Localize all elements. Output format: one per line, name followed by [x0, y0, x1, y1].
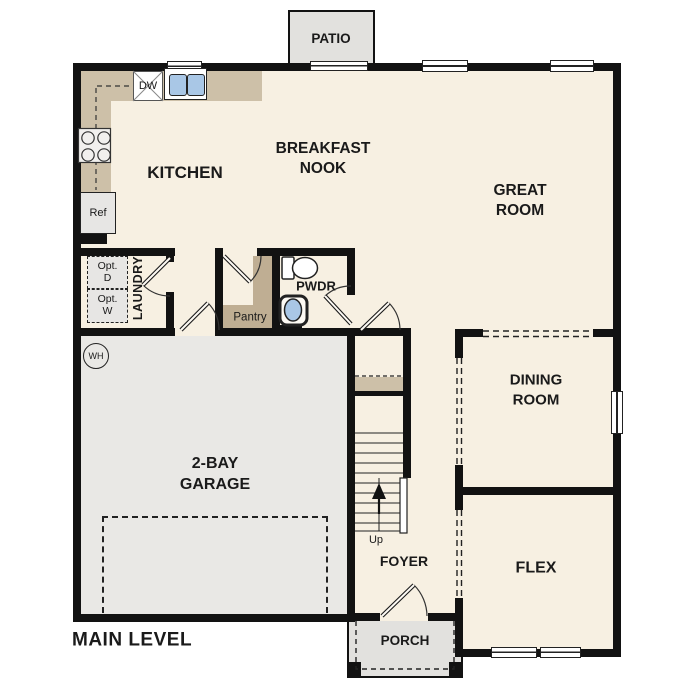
water-heater-label: WH — [89, 351, 104, 361]
kitchen-label: KITCHEN — [147, 162, 223, 184]
wall-dining-top-left — [455, 329, 483, 337]
up-label: Up — [369, 533, 383, 547]
garage-door-outline — [102, 516, 328, 613]
wall-hall-top-left — [81, 248, 175, 256]
wall-stair-right — [403, 328, 411, 478]
wall-flex-bottom — [455, 649, 621, 657]
wall-garage-top-right — [218, 328, 355, 336]
dining-window — [611, 391, 623, 434]
wall-below-ref — [73, 234, 107, 244]
wall-stair-top — [347, 328, 411, 336]
wall-left — [73, 63, 81, 622]
garage-label: 2-BAY GARAGE — [180, 454, 250, 496]
wall-garage-top-left — [73, 328, 175, 336]
laundry-label: LAUNDRY — [130, 256, 146, 320]
pantry-label: Pantry — [233, 311, 266, 326]
kitchen-counter-left — [81, 101, 111, 192]
refrigerator-label: Ref — [89, 207, 106, 219]
dw-label: DW — [139, 79, 157, 93]
patio-sliding-door — [310, 61, 368, 71]
under-stair-band — [355, 377, 403, 392]
great-room-window-2 — [550, 60, 594, 72]
opt-washer-line2: W — [103, 306, 113, 318]
opt-dryer-box: Opt. D — [87, 256, 128, 289]
wall-foyer-bottom-right — [428, 613, 455, 621]
wall-dining-bottom — [455, 487, 621, 495]
foyer-label: FOYER — [380, 552, 428, 570]
flex-label: FLEX — [516, 559, 557, 580]
wall-flex-left — [455, 598, 463, 657]
breakfast-nook-label: BREAKFAST NOOK — [276, 139, 371, 179]
wall-garage-bottom — [73, 614, 355, 622]
floor-plan: Ref Opt. D Opt. W WH — [0, 0, 687, 687]
wall-laundry-right-stub — [166, 248, 174, 262]
flex-window-2 — [540, 647, 581, 658]
water-heater-icon: WH — [83, 343, 109, 369]
wall-dining-top-right — [593, 329, 621, 337]
pwdr-label: PWDR — [296, 279, 336, 296]
wall-under-stair — [355, 391, 403, 396]
wall-pantry-right — [272, 248, 280, 336]
sink-icon — [164, 68, 207, 100]
porch-post-right — [449, 662, 463, 676]
porch-post-left — [347, 662, 361, 676]
wall-stair-left — [347, 328, 355, 621]
opt-dryer-line1: Opt. — [98, 261, 118, 273]
wall-dining-left-stub-top — [455, 337, 463, 358]
main-level-title: MAIN LEVEL — [72, 629, 192, 654]
dining-label: DINING ROOM — [510, 371, 563, 410]
wall-pantry-left — [215, 248, 223, 336]
great-room-window-1 — [422, 60, 468, 72]
flex-window-1 — [491, 647, 537, 658]
wall-pwdr-right — [347, 248, 355, 295]
opt-washer-box: Opt. W — [87, 289, 128, 323]
great-room-label: GREAT ROOM — [493, 181, 546, 221]
wall-right — [613, 63, 621, 657]
porch-label: PORCH — [381, 632, 430, 650]
patio-label: PATIO — [311, 30, 350, 48]
opt-dryer-line2: D — [104, 273, 112, 285]
refrigerator: Ref — [80, 192, 116, 234]
wall-flex-left-stub — [455, 495, 463, 510]
